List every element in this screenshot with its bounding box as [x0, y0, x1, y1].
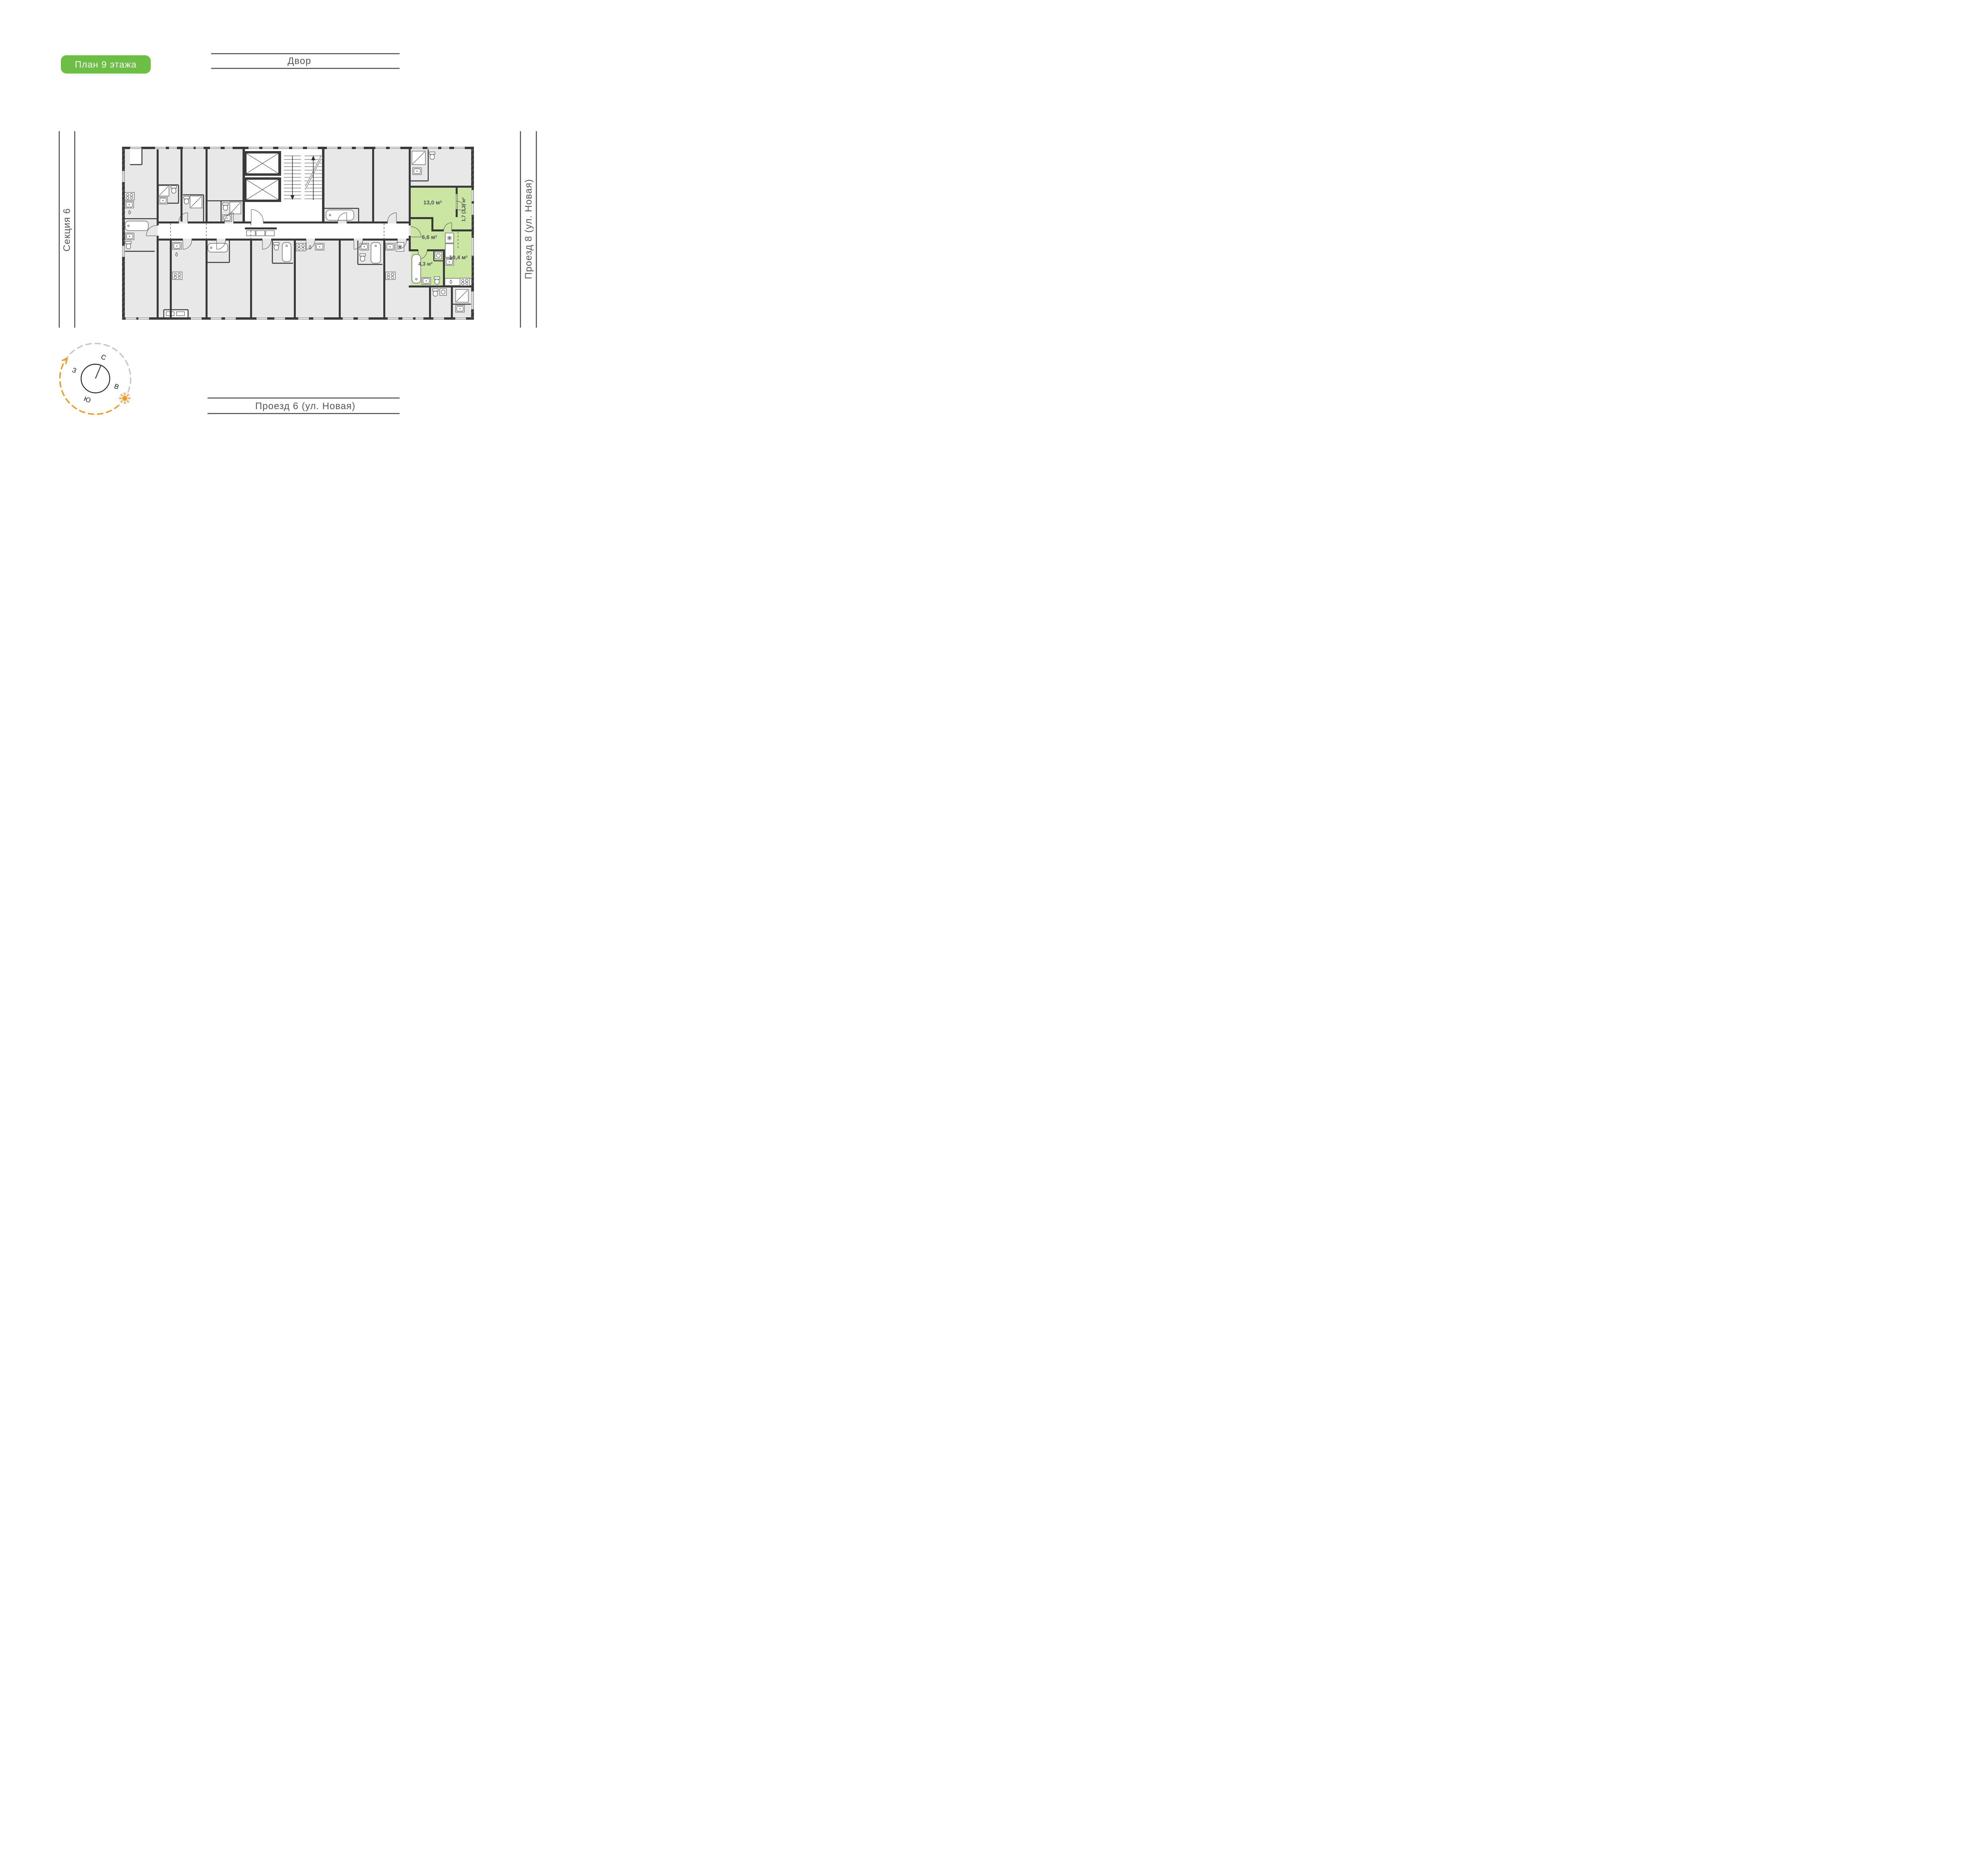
- floor-badge-label: План 9 этажа: [75, 59, 137, 70]
- washbasin-icon: [456, 305, 464, 312]
- toilet-icon: [429, 152, 435, 159]
- room-label-bathroom: 4,3 м²: [418, 261, 433, 267]
- toilet-icon: [126, 241, 131, 249]
- bottom-recess: [164, 310, 188, 317]
- floor-badge: План 9 этажа: [61, 55, 151, 74]
- shower-icon: [159, 186, 169, 196]
- kitchen-sink-icon: [386, 243, 394, 250]
- shower-icon: [456, 289, 468, 302]
- street-top: Двор: [211, 54, 400, 68]
- fridge-icon: [396, 243, 404, 251]
- washbasin-icon: [159, 197, 167, 204]
- washbasin-icon: [125, 233, 134, 240]
- washbasin-icon: [422, 278, 431, 284]
- bathtub-icon: [208, 243, 228, 252]
- stove-icon: [460, 278, 470, 286]
- stove-icon: [125, 192, 134, 200]
- street-right: Проезд 8 (ул. Новая): [520, 131, 536, 328]
- toilet-icon: [434, 277, 440, 284]
- compass-west-label: З: [71, 366, 78, 375]
- building: 13,0 м² 6,6 м² 10,4 м² 4,3 м² 1,7 (3,3) …: [122, 147, 474, 320]
- stove-icon: [173, 272, 182, 280]
- kitchen-sink-icon: [173, 243, 181, 249]
- shower-icon: [412, 151, 425, 165]
- shower-icon: [230, 202, 241, 214]
- bathtub-icon: [125, 221, 148, 231]
- toilet-icon: [360, 254, 365, 261]
- stove-icon: [296, 243, 306, 251]
- highlighted-apartment[interactable]: 13,0 м² 6,6 м² 10,4 м² 4,3 м² 1,7 (3,3) …: [409, 186, 474, 287]
- toilet-icon: [184, 196, 189, 204]
- shower-icon: [190, 196, 202, 208]
- bathtub-icon: [412, 254, 421, 283]
- toilet-icon: [223, 203, 228, 210]
- street-top-label: Двор: [287, 56, 311, 66]
- core-loggia: [245, 227, 277, 236]
- street-left: Секция 6: [59, 131, 75, 328]
- compass: С В Ю З: [60, 344, 131, 414]
- street-bottom-label: Проезд 6 (ул. Новая): [255, 401, 355, 412]
- plan-canvas: Двор Проезд 6 (ул. Новая) Секция 6 Проез…: [0, 0, 596, 468]
- street-bottom: Проезд 6 (ул. Новая): [208, 398, 400, 414]
- washer-icon: [440, 289, 447, 295]
- room-label-balcony: 1,7 (3,3) м²: [461, 198, 466, 222]
- top-left-recess: [130, 148, 142, 165]
- street-right-label: Проезд 8 (ул. Новая): [523, 179, 534, 279]
- washbasin-icon: [360, 243, 369, 250]
- bathtub-icon: [282, 243, 291, 262]
- room-label-living: 13,0 м²: [423, 199, 442, 206]
- floor-plan-page: Двор Проезд 6 (ул. Новая) Секция 6 Проез…: [0, 0, 596, 468]
- sun-icon: [118, 392, 131, 404]
- compass-east-label: В: [113, 382, 120, 391]
- washer-icon: [435, 252, 442, 259]
- stove-icon: [386, 272, 395, 280]
- compass-north-label: С: [100, 353, 107, 362]
- toilet-icon: [171, 186, 177, 193]
- corridor: [158, 223, 409, 239]
- street-left-label: Секция 6: [62, 208, 72, 251]
- bathtub-icon: [326, 210, 354, 220]
- fridge-icon: [445, 233, 454, 243]
- toilet-icon: [274, 243, 279, 250]
- kitchen-sink-icon: [315, 243, 324, 250]
- toilet-icon: [433, 289, 438, 296]
- room-label-hallway: 6,6 м²: [422, 234, 437, 240]
- kitchen-sink-icon: [125, 201, 134, 208]
- room-label-kitchen: 10,4 м²: [449, 254, 468, 260]
- washbasin-icon: [413, 168, 421, 175]
- compass-south-label: Ю: [83, 395, 92, 404]
- bathtub-icon: [371, 243, 381, 263]
